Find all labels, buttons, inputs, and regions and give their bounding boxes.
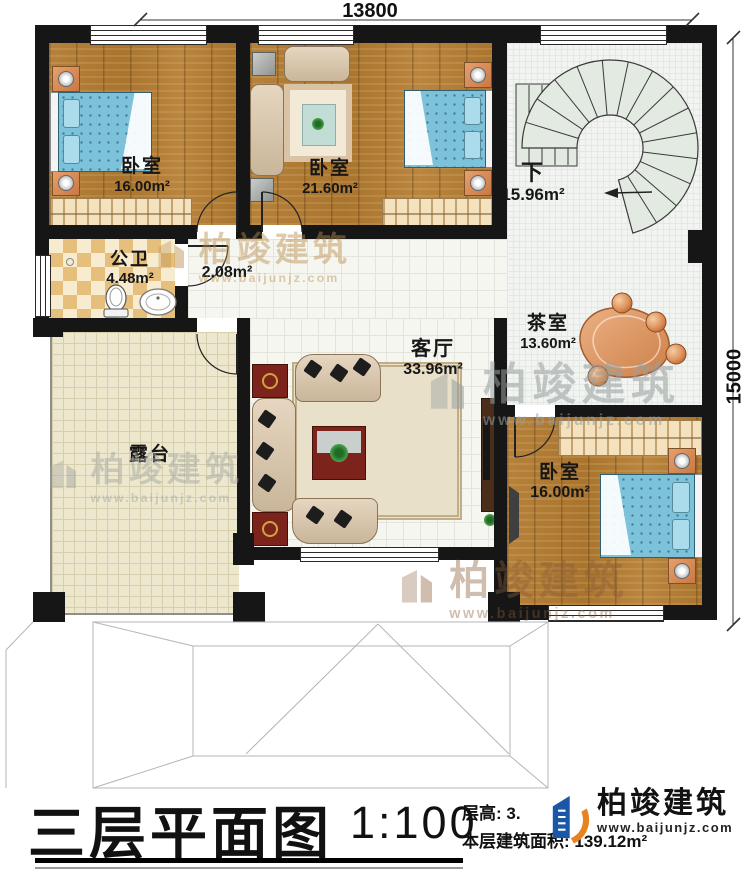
coffee-table [312, 426, 366, 480]
pillar [688, 230, 704, 263]
bed [600, 474, 695, 558]
wall-bathroom [175, 286, 188, 318]
side-table [252, 364, 288, 398]
window [90, 25, 207, 45]
watermark-logo-icon [392, 560, 442, 610]
nightstand [668, 558, 696, 584]
floor-plan-canvas: 13800 15000 卧室 16.00m² 卧室 21.60m² 下 15.9… [0, 0, 750, 880]
side-sofa [250, 84, 284, 176]
decor-ring [262, 373, 278, 389]
nightstand [464, 62, 492, 88]
wall-bedroom-divider [236, 43, 250, 239]
lamp-icon [674, 453, 690, 469]
roof-outline [6, 622, 548, 788]
pillow [672, 482, 690, 513]
terrace-floor [50, 332, 239, 615]
nightstand [668, 448, 696, 474]
living-room-label: 客厅 33.96m² [383, 338, 483, 379]
lamp-icon [674, 563, 690, 579]
pillow [63, 99, 80, 128]
nightstand [52, 170, 80, 196]
pillar [233, 592, 265, 622]
wall-living-bottom [237, 547, 300, 560]
decor-ring [262, 521, 278, 537]
bed-sheet [405, 91, 433, 165]
company-name: 柏竣建筑 [597, 788, 733, 820]
bathroom-label: 公卫 4.48m² [80, 249, 180, 287]
table-plant [312, 118, 324, 130]
wall-living-left [237, 318, 250, 560]
pillar [33, 592, 65, 622]
company-logo: 柏竣建筑 www.baijunjz.com [538, 788, 733, 846]
title-underline-thin [35, 867, 463, 869]
pillar [33, 318, 63, 337]
wall-right [702, 25, 717, 620]
pillar [488, 592, 520, 622]
wall-living-right [494, 318, 507, 605]
drawing-scale: 1:100 [350, 797, 478, 849]
dimension-top: 13800 [300, 0, 440, 23]
window [548, 605, 664, 622]
corner-table [252, 52, 276, 76]
wall-stair-divider [492, 43, 507, 239]
bedroom1-label: 卧室 16.00m² [92, 156, 192, 195]
loveseat-sofa [284, 46, 350, 82]
nightstand [52, 66, 80, 92]
bed [404, 90, 486, 168]
window [540, 25, 667, 45]
tea-room-label: 茶室 13.60m² [500, 313, 596, 352]
lamp-icon [58, 175, 74, 191]
wall-bathroom [175, 239, 188, 244]
company-logo-icon [538, 788, 593, 846]
terrace-label: 露台 [110, 444, 190, 466]
window [258, 25, 354, 45]
pillow [672, 519, 690, 550]
wall-tea-bedroom [507, 405, 515, 417]
wall-interior [35, 225, 197, 239]
side-table [252, 512, 288, 546]
window [300, 547, 439, 562]
company-url: www.baijunjz.com [597, 820, 733, 835]
lamp-icon [470, 67, 486, 83]
pillow [63, 135, 80, 164]
wall-interior [302, 225, 507, 239]
wall-bottom [662, 605, 717, 620]
stairs-label: 下 15.96m² [478, 160, 588, 205]
wall-interior [237, 225, 262, 239]
hallway-label: 2.08m² [172, 264, 282, 282]
wall-tea-bedroom [555, 405, 717, 417]
tv [483, 418, 490, 480]
pillow [464, 97, 481, 125]
bedroom3-label: 卧室 16.00m² [510, 462, 610, 502]
window [35, 255, 51, 317]
table-plant [330, 444, 348, 462]
bedroom2-label: 卧室 21.60m² [280, 158, 380, 197]
lamp-icon [58, 71, 74, 87]
title-underline [35, 858, 463, 863]
pillow [464, 131, 481, 159]
corner-table [250, 178, 274, 202]
dimension-right: 15000 [724, 337, 747, 417]
